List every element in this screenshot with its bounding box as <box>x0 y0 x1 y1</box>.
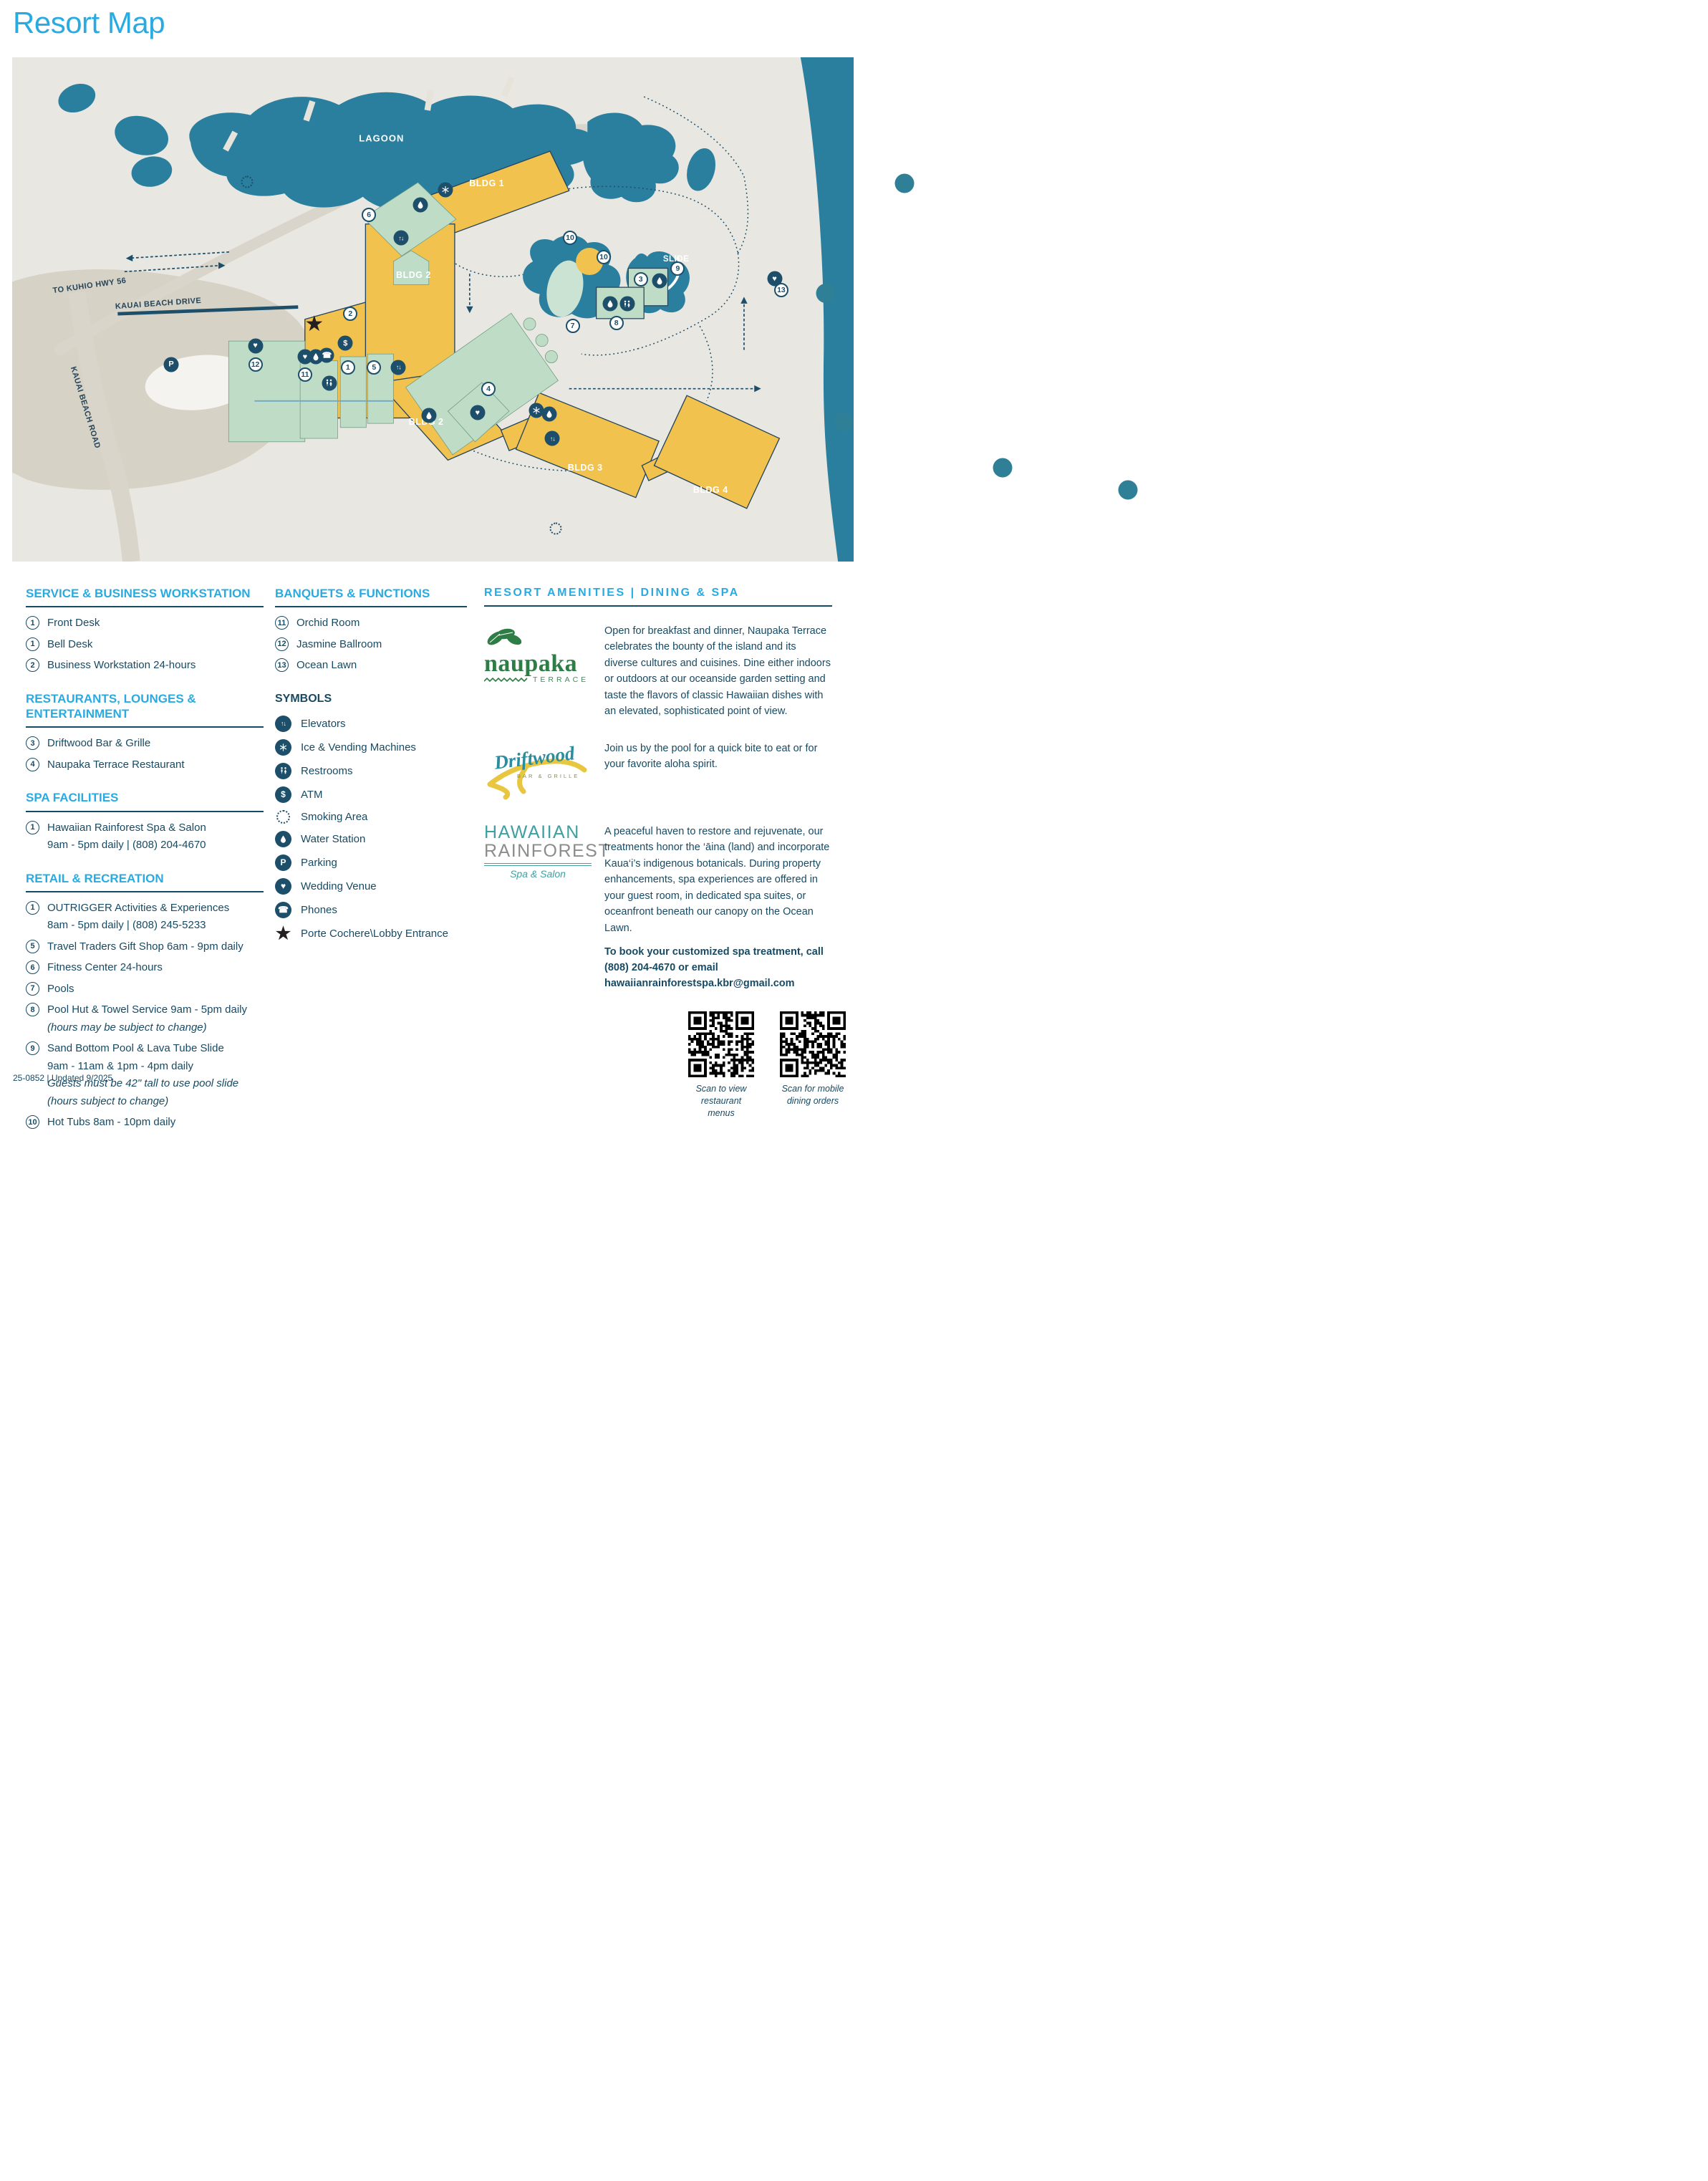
item-number-badge: 3 <box>26 736 39 750</box>
section-services: SERVICE & BUSINESS WORKSTATION 1 Front D… <box>26 586 264 674</box>
section-title-line2: ENTERTAINMENT <box>26 706 264 721</box>
divider <box>26 606 264 607</box>
amenities-title: RESORT AMENITIES | DINING & SPA <box>484 586 832 600</box>
column-services: SERVICE & BUSINESS WORKSTATION 1 Front D… <box>26 586 264 1148</box>
divider <box>26 891 264 892</box>
symbol-label: Water Station <box>301 833 365 845</box>
item-label: Driftwood Bar & Grille <box>47 737 150 749</box>
symbol-label: Parking <box>301 857 337 869</box>
building-label-text: BLDG 2 <box>396 270 431 280</box>
map-marker-9: 9 <box>670 261 685 276</box>
elevator-icon: ↑↓ <box>545 431 560 446</box>
porte-cochere-icon: ★ <box>304 314 324 335</box>
map-marker-7: 7 <box>566 319 580 333</box>
column-banquets-symbols: BANQUETS & FUNCTIONS 11 Orchid Room 12 J… <box>275 586 467 949</box>
kauai-beach-road-label: KAUAI BEACH ROAD <box>69 366 102 450</box>
restrooms-icon <box>619 297 635 312</box>
item-subline: 9am - 11am & 1pm - 4pm daily <box>47 1059 238 1075</box>
list-item: 5 Travel Traders Gift Shop 6am - 9pm dai… <box>26 939 264 955</box>
retail-list: 1 OUTRIGGER Activities & Experiences8am … <box>26 900 264 1131</box>
hawaiian-rainforest-logo: HAWAIIAN RAINFOREST Spa & Salon <box>484 823 592 992</box>
elevator-icon: ↑↓ <box>393 231 408 246</box>
item-label: Ocean Lawn <box>296 659 357 671</box>
elevator-icon: ↑↓ <box>391 360 406 375</box>
wedding-icon: ♥ <box>767 271 782 287</box>
item-label: Travel Traders Gift Shop 6am - 9pm daily <box>47 940 243 953</box>
naupaka-terrace-logo: naupaka TERRACE <box>484 625 592 720</box>
item-label: Naupaka Terrace Restaurant <box>47 759 185 771</box>
item-label: Sand Bottom Pool & Lava Tube Slide <box>47 1042 224 1054</box>
symbol-label: Smoking Area <box>301 811 367 823</box>
ice-vending-icon <box>438 183 453 198</box>
map-markers-layer: LAGOONSLIDETO KUHIO HWY 56KAUAI BEACH DR… <box>12 57 854 562</box>
phones-icon: ☎ <box>319 348 334 363</box>
section-spa: SPA FACILITIES 1 Hawaiian Rainforest Spa… <box>26 790 264 853</box>
divider <box>26 811 264 812</box>
list-item: 2 Business Workstation 24-hours <box>26 658 264 674</box>
smoking-icon <box>276 810 290 824</box>
bldg-3-label: BLDG 3 <box>165 463 1006 473</box>
symbols-title: SYMBOLS <box>275 693 467 706</box>
rainforest-wordmark-1: HAWAIIAN <box>484 823 592 842</box>
item-number-badge: 5 <box>26 940 39 953</box>
list-item: 1 Hawaiian Rainforest Spa & Salon9am - 5… <box>26 820 264 854</box>
atm-icon: $ <box>338 336 353 351</box>
qr-caption-line2: dining orders <box>787 1096 839 1106</box>
map-marker-12: 12 <box>249 357 263 372</box>
venue-naupaka: naupaka TERRACE Open for breakfast and d… <box>484 621 832 720</box>
item-number-badge: 7 <box>26 982 39 996</box>
smoking-area-icon <box>241 175 253 188</box>
item-number-badge: 13 <box>275 658 289 672</box>
item-label: Front Desk <box>47 617 100 629</box>
restrooms-icon <box>275 763 291 779</box>
map-marker-1: 1 <box>341 360 355 375</box>
section-title: RESTAURANTS, LOUNGES & <box>26 691 264 706</box>
item-number-badge: 12 <box>275 637 289 651</box>
list-item: 1 OUTRIGGER Activities & Experiences8am … <box>26 900 264 934</box>
section-banquets: BANQUETS & FUNCTIONS 11 Orchid Room 12 J… <box>275 586 467 674</box>
rainforest-wordmark-2: RAINFOREST <box>484 842 592 860</box>
map-marker-11: 11 <box>298 367 312 382</box>
naupaka-description: Open for breakfast and dinner, Naupaka T… <box>604 623 832 720</box>
naupaka-zigzag <box>484 677 529 683</box>
restrooms-icon <box>322 375 337 390</box>
symbol-row: Smoking Area <box>275 810 467 824</box>
bldg-4-label: BLDG 4 <box>290 485 1132 495</box>
symbol-label: Ice & Vending Machines <box>301 741 416 754</box>
section-title: SERVICE & BUSINESS WORKSTATION <box>26 586 264 601</box>
restaurants-list: 3 Driftwood Bar & Grille 4 Naupaka Terra… <box>26 736 264 773</box>
symbol-row: ☎ Phones <box>275 902 467 918</box>
symbol-row: ♥ Wedding Venue <box>275 878 467 895</box>
building-label-text: BLDG 3 <box>568 463 603 473</box>
driftwood-bar-grille-label: BAR & GRILLE <box>517 773 579 779</box>
rainforest-description: A peaceful haven to restore and rejuvena… <box>604 824 832 936</box>
section-title: SPA FACILITIES <box>26 790 264 805</box>
venue-driftwood: Driftwood BAR & GRILLE Join us by the po… <box>484 738 832 803</box>
qr-caption: Scan for mobile <box>782 1084 844 1094</box>
water-icon <box>412 197 428 212</box>
atm-icon: $ <box>275 786 291 803</box>
qr-mobile-dining: Scan for mobile dining orders <box>779 1011 846 1107</box>
item-subline: (hours may be subject to change) <box>47 1020 247 1036</box>
symbol-label: ATM <box>301 789 323 801</box>
resort-map: LAGOONSLIDETO KUHIO HWY 56KAUAI BEACH DR… <box>12 57 854 562</box>
item-number-badge: 10 <box>26 1115 39 1129</box>
document-number: 25-0852 | Updated 9/2025 <box>13 1073 112 1083</box>
item-subline: (hours subject to change) <box>47 1094 238 1110</box>
water-icon <box>541 407 556 422</box>
section-title: BANQUETS & FUNCTIONS <box>275 586 467 601</box>
building-label-text: BLDG 4 <box>693 485 728 495</box>
water-icon <box>603 297 618 312</box>
item-number-badge: 2 <box>26 658 39 672</box>
kauai-beach-drive-label: KAUAI BEACH DRIVE <box>115 297 202 311</box>
list-item: 1 Bell Desk <box>26 637 264 653</box>
building-dot <box>894 174 914 193</box>
map-marker-8: 8 <box>609 316 624 330</box>
driftwood-logo: Driftwood BAR & GRILLE <box>484 741 592 803</box>
item-number-badge: 1 <box>26 821 39 834</box>
section-restaurants: RESTAURANTS, LOUNGES & ENTERTAINMENT 3 D… <box>26 691 264 774</box>
spa-booking-info: To book your customized spa treatment, c… <box>604 945 832 991</box>
item-number-badge: 9 <box>26 1041 39 1055</box>
symbol-row: P Parking <box>275 854 467 871</box>
water-icon <box>652 273 667 288</box>
naupaka-wordmark: naupaka <box>484 653 592 675</box>
symbol-label: Restrooms <box>301 765 353 777</box>
wedding-icon: ♥ <box>275 878 291 895</box>
column-amenities: RESORT AMENITIES | DINING & SPA naupaka … <box>484 586 832 1010</box>
venue-hawaiian-rainforest: HAWAIIAN RAINFOREST Spa & Salon A peacef… <box>484 822 832 992</box>
item-label: Business Workstation 24-hours <box>47 659 196 671</box>
water-icon <box>421 408 436 423</box>
item-number-badge: 8 <box>26 1003 39 1016</box>
divider <box>275 606 467 607</box>
qr-restaurant-menus: Scan to view restaurant menus <box>687 1011 755 1120</box>
list-item: 1 Front Desk <box>26 615 264 632</box>
rainforest-divider <box>484 863 592 866</box>
wedding-icon: ♥ <box>470 405 485 420</box>
list-item: 13 Ocean Lawn <box>275 658 467 674</box>
parking-icon: P <box>164 357 179 372</box>
item-label: Hawaiian Rainforest Spa & Salon <box>47 822 206 834</box>
item-label: Fitness Center 24-hours <box>47 961 163 973</box>
driftwood-description: Join us by the pool for a quick bite to … <box>604 741 832 773</box>
ice-vending-icon <box>275 739 291 756</box>
map-marker-3: 3 <box>634 272 648 287</box>
list-item: 4 Naupaka Terrace Restaurant <box>26 757 264 774</box>
item-subline: 9am - 5pm daily | (808) 204-4670 <box>47 837 206 854</box>
item-number-badge: 1 <box>26 901 39 915</box>
symbols-list: ↑↓ Elevators Ice & Vending Machines Rest… <box>275 716 467 942</box>
lagoon-label: LAGOON <box>359 133 404 144</box>
item-number-badge: 1 <box>26 637 39 651</box>
qr-caption-line2: restaurant menus <box>701 1096 741 1118</box>
symbol-label: Phones <box>301 904 337 916</box>
qr-code-image <box>779 1011 846 1077</box>
list-item: 8 Pool Hut & Towel Service 9am - 5pm dai… <box>26 1002 264 1036</box>
item-number-badge: 4 <box>26 758 39 771</box>
spa-salon-label: Spa & Salon <box>484 868 592 880</box>
symbol-label: Elevators <box>301 718 346 730</box>
symbol-row: Ice & Vending Machines <box>275 739 467 756</box>
elevator-icon: ↑↓ <box>275 716 291 732</box>
item-label: Jasmine Ballroom <box>296 638 382 650</box>
section-retail: RETAIL & RECREATION 1 OUTRIGGER Activiti… <box>26 871 264 1131</box>
item-number-badge: 6 <box>26 960 39 974</box>
symbol-label: Wedding Venue <box>301 880 377 892</box>
section-title: RETAIL & RECREATION <box>26 871 264 886</box>
building-dot <box>834 412 854 431</box>
bldg-2-label: BLDG 2 <box>0 270 834 280</box>
symbol-label: Porte Cochere\Lobby Entrance <box>301 928 448 940</box>
list-item: 12 Jasmine Ballroom <box>275 637 467 653</box>
item-number-badge: 1 <box>26 616 39 630</box>
porte-icon: ★ <box>275 925 291 942</box>
item-label: Orchid Room <box>296 617 360 629</box>
naupaka-leaves-icon <box>484 625 521 650</box>
building-dot <box>816 284 836 303</box>
services-list: 1 Front Desk 1 Bell Desk 2 Business Work… <box>26 615 264 674</box>
building-dot <box>993 458 1013 477</box>
list-item: 7 Pools <box>26 981 264 998</box>
list-item: 6 Fitness Center 24-hours <box>26 960 264 976</box>
list-item: 11 Orchid Room <box>275 615 467 632</box>
map-marker-10: 10 <box>563 231 577 245</box>
naupaka-terrace-label: TERRACE <box>533 675 589 684</box>
map-marker-6: 6 <box>362 208 376 222</box>
water-icon <box>275 831 291 847</box>
building-dot <box>1119 481 1138 500</box>
symbol-row: Water Station <box>275 831 467 847</box>
item-number-badge: 11 <box>275 616 289 630</box>
item-label: Pool Hut & Towel Service 9am - 5pm daily <box>47 1003 247 1016</box>
symbol-row: Restrooms <box>275 763 467 779</box>
smoking-area-icon <box>550 522 562 534</box>
map-marker-2: 2 <box>343 307 357 321</box>
qr-caption: Scan to view <box>696 1084 747 1094</box>
banquets-list: 11 Orchid Room 12 Jasmine Ballroom 13 Oc… <box>275 615 467 674</box>
item-subline: 8am - 5pm daily | (808) 245-5233 <box>47 918 229 934</box>
item-label: Pools <box>47 983 74 995</box>
bldg-1-label: BLDG 1 <box>66 178 907 188</box>
phones-icon: ☎ <box>275 902 291 918</box>
building-label-text: BLDG 1 <box>469 178 504 188</box>
wedding-icon: ♥ <box>248 338 263 353</box>
list-item: 10 Hot Tubs 8am - 10pm daily <box>26 1114 264 1131</box>
page-title: Resort Map <box>13 6 165 40</box>
symbol-row: ★ Porte Cochere\Lobby Entrance <box>275 925 467 942</box>
divider <box>484 605 832 607</box>
qr-code-image <box>687 1011 755 1077</box>
item-label: Hot Tubs 8am - 10pm daily <box>47 1116 175 1128</box>
divider <box>26 726 264 728</box>
map-marker-4: 4 <box>481 382 496 396</box>
symbol-row: ↑↓ Elevators <box>275 716 467 732</box>
spa-list: 1 Hawaiian Rainforest Spa & Salon9am - 5… <box>26 820 264 854</box>
list-item: 3 Driftwood Bar & Grille <box>26 736 264 752</box>
parking-icon: P <box>275 854 291 871</box>
map-marker-5: 5 <box>367 360 381 375</box>
item-label: Bell Desk <box>47 638 92 650</box>
symbol-row: $ ATM <box>275 786 467 803</box>
map-marker-10: 10 <box>597 250 611 264</box>
item-label: OUTRIGGER Activities & Experiences <box>47 902 229 914</box>
